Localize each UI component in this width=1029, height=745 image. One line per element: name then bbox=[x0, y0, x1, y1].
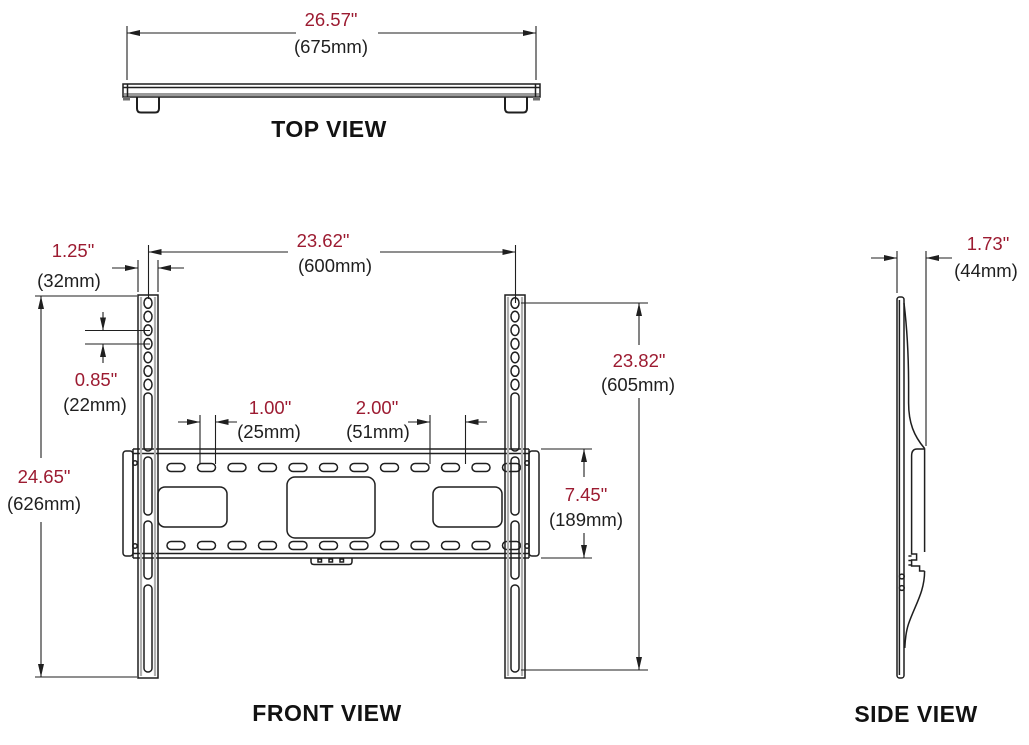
front-view: 23.62" (600mm) 1.25" (32mm) 0.85" (22mm) bbox=[7, 230, 675, 726]
notch-detail bbox=[329, 559, 333, 562]
side-view-label: SIDE VIEW bbox=[854, 701, 977, 727]
drawing-canvas: 26.57" (675mm) TOP VIEW bbox=[0, 0, 1029, 745]
dim-overall-height: 24.65" (626mm) bbox=[7, 296, 137, 677]
plate-cutout-center bbox=[287, 477, 375, 538]
plate-slot-row-top bbox=[167, 464, 521, 472]
side-screw-hole bbox=[899, 586, 904, 591]
tab-nub bbox=[133, 461, 137, 465]
dim-rail-width-inch: 1.25" bbox=[52, 240, 95, 261]
side-rail-curve bbox=[904, 303, 925, 449]
dim-slot-spacing-inch: 2.00" bbox=[356, 397, 399, 418]
plate-cutout-right bbox=[433, 487, 502, 527]
top-bar-foot-right bbox=[533, 97, 540, 101]
dim-rail-width: 1.25" (32mm) bbox=[37, 240, 184, 292]
plate-end-tab-left bbox=[123, 451, 133, 556]
dim-plate-height-mm: (189mm) bbox=[549, 509, 623, 530]
front-rail-left bbox=[138, 295, 158, 678]
side-screw-hole bbox=[899, 574, 904, 579]
side-view: 1.73" (44mm) SIDE VIEW bbox=[854, 233, 1018, 727]
dim-hole-span-inch: 23.62" bbox=[297, 230, 350, 251]
tab-nub bbox=[133, 544, 137, 548]
dim-hole-spacing: 0.85" (22mm) bbox=[63, 312, 150, 415]
top-rail-tab-right bbox=[505, 97, 527, 113]
side-rail-profile bbox=[897, 297, 904, 678]
dim-depth-inch: 1.73" bbox=[967, 233, 1010, 254]
dim-overall-height-mm: (626mm) bbox=[7, 493, 81, 514]
side-view-geometry bbox=[897, 297, 925, 678]
plate-end-tab-right bbox=[529, 451, 539, 556]
side-plate-channel-outer bbox=[912, 449, 925, 552]
front-rail-right bbox=[505, 295, 525, 678]
dim-slot-length-mm: (25mm) bbox=[237, 421, 301, 442]
notch-detail bbox=[318, 559, 322, 562]
dim-hole-spacing-inch: 0.85" bbox=[75, 369, 118, 390]
dim-plate-height: 7.45" (189mm) bbox=[541, 449, 623, 558]
top-view-label: TOP VIEW bbox=[271, 116, 387, 142]
dim-depth: 1.73" (44mm) bbox=[871, 233, 1018, 446]
notch-detail bbox=[340, 559, 344, 562]
plate-slot-row-bottom bbox=[167, 542, 521, 550]
front-view-label: FRONT VIEW bbox=[252, 700, 401, 726]
dim-plate-height-inch: 7.45" bbox=[565, 484, 608, 505]
dim-overall-width-inch: 26.57" bbox=[305, 9, 358, 30]
top-view-geometry bbox=[123, 84, 540, 113]
dim-depth-mm: (44mm) bbox=[954, 260, 1018, 281]
dim-mount-hole-height-mm: (605mm) bbox=[601, 374, 675, 395]
dim-hole-spacing-mm: (22mm) bbox=[63, 394, 127, 415]
mount-technical-drawing: 26.57" (675mm) TOP VIEW bbox=[0, 0, 1029, 745]
top-rail-tab-left bbox=[137, 97, 159, 113]
top-bar-foot-left bbox=[123, 97, 130, 101]
dim-slot-length-inch: 1.00" bbox=[249, 397, 292, 418]
dim-mount-hole-span: 23.62" (600mm) bbox=[149, 230, 516, 303]
side-lower-curve bbox=[905, 571, 925, 648]
dim-overall-height-inch: 24.65" bbox=[18, 466, 71, 487]
dim-hole-span-mm: (600mm) bbox=[298, 255, 372, 276]
plate-cutout-left bbox=[158, 487, 227, 527]
top-view: 26.57" (675mm) TOP VIEW bbox=[123, 9, 540, 142]
dim-rail-width-mm: (32mm) bbox=[37, 270, 101, 291]
dim-overall-width: 26.57" (675mm) bbox=[127, 9, 536, 80]
dim-overall-width-mm: (675mm) bbox=[294, 36, 368, 57]
dim-mount-hole-height-inch: 23.82" bbox=[613, 350, 666, 371]
dim-slot-spacing-mm: (51mm) bbox=[346, 421, 410, 442]
side-channel-bottom-hook bbox=[912, 548, 925, 571]
front-wall-plate bbox=[123, 449, 539, 565]
